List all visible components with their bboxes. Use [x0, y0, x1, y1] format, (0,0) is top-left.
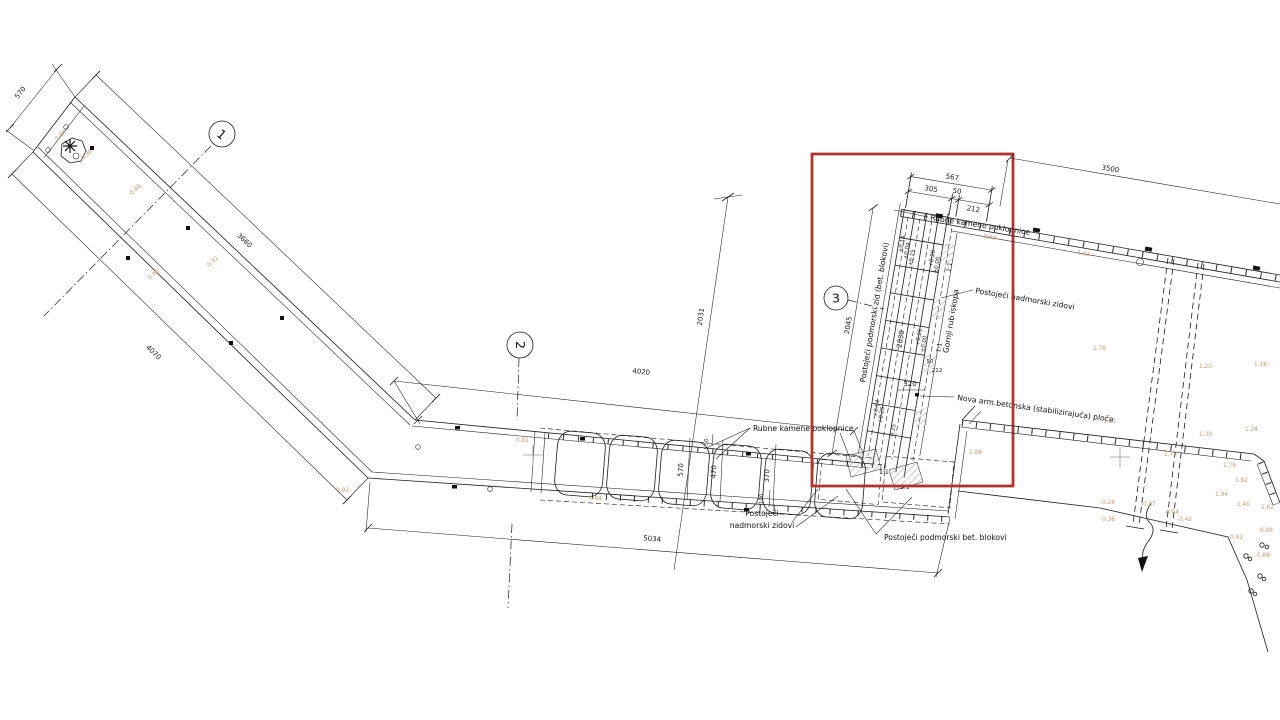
spot-elevation: -0.36	[1100, 517, 1115, 523]
dim-vertical-ext: 2031	[696, 307, 706, 326]
dim-2031-group: 2031	[674, 193, 742, 570]
dim-sec-470: 470	[710, 465, 719, 479]
spot-elevation: 0.94	[54, 129, 68, 142]
spot-elevations: 0.94 0.98 0.86 0.92 0.90 0.93 0.81 0.84 …	[54, 129, 1274, 559]
bollard	[452, 485, 457, 489]
level-mark: -0.25	[889, 423, 897, 439]
section-marker-1: 1	[44, 121, 235, 316]
dim-head-width: 570	[13, 85, 28, 100]
spot-elevation: 1.78	[1093, 346, 1106, 352]
spot-elevation: 1.16	[1254, 362, 1267, 368]
slope-mark: 1:1	[879, 469, 889, 476]
spot-elevation: 0.93	[336, 488, 349, 494]
bollard	[280, 316, 284, 320]
section-marker-1-label: 1	[214, 126, 230, 143]
spot-elevation: 1.21	[1077, 250, 1091, 258]
dim-pier-top: 4020	[632, 367, 651, 377]
spot-elevation: 1.94	[1215, 492, 1228, 498]
dim-inner-side: 4070	[144, 344, 162, 362]
spot-elevation: 1.40	[1237, 502, 1250, 508]
spot-elevation: 1.75	[1164, 452, 1177, 458]
label-nadmorski-zidovi: nadmorski zidovi	[730, 521, 795, 530]
label-rubne-kamene-poklopnice: Rubne kamene poklopnice	[753, 424, 854, 433]
site-plan-canvas: 570 3660 4070 1	[0, 0, 1280, 720]
dim-detail-f: 320	[903, 380, 916, 388]
dim-quay: 3500	[1101, 164, 1120, 175]
dim-5034-group: 5034	[364, 482, 950, 577]
bollard	[1145, 247, 1153, 252]
spot-elevation: -0.37	[1141, 502, 1156, 508]
label-postojeci: Postojeći	[745, 509, 779, 518]
excavation-hatch	[913, 407, 928, 429]
label-gornji-rub-iskopa: Gornji rub iskopa	[941, 289, 961, 354]
dim-detail-total: 567	[945, 172, 960, 182]
spot-elevation: 0.86	[129, 183, 143, 196]
dim-sec-570: 570	[677, 463, 686, 477]
bollard	[1033, 228, 1041, 233]
dim-detail-c: 212	[966, 204, 981, 214]
spot-elevation: 0.99	[983, 234, 997, 242]
spot-elevation: 0.81	[516, 438, 529, 444]
label-nadmorski-right: Postojeći nadmorski zidovi	[975, 286, 1076, 311]
angled-pier-detail: 2045	[821, 160, 996, 485]
dim-outer-side: 3660	[235, 232, 253, 250]
dim-sec-50: 50	[704, 438, 710, 446]
spot-elevation: 0.92	[206, 255, 220, 268]
bollard	[746, 452, 751, 456]
dim-detail-a: 305	[924, 184, 939, 194]
spot-elevation: 1.20	[1199, 364, 1212, 370]
excavation-hatch	[940, 243, 955, 265]
bollard	[1253, 266, 1261, 271]
pier-labels: Rubne kamene poklopnice Postojeći nadmor…	[704, 424, 1007, 542]
label-nova-ploca: Nova arm.betonska (stabilizirajuća) ploč…	[957, 393, 1114, 424]
dim-sec-100: 100	[759, 493, 766, 504]
survey-cross	[523, 445, 1130, 467]
spot-elevation: 1.24	[1245, 427, 1258, 433]
excavation-hatch	[931, 298, 946, 320]
dim-pier-bottom: 5034	[643, 534, 662, 543]
dim-detail-b: 50	[952, 187, 962, 196]
rock-symbols	[1244, 543, 1269, 596]
label-podmorski-blokovi: Postojeći podmorski bet. blokovi	[884, 533, 1007, 542]
spot-elevation: 0.98	[80, 148, 94, 161]
spot-elevation: 1.79	[1223, 463, 1236, 469]
bollard	[186, 226, 190, 230]
section-marker-2: 2	[507, 332, 533, 608]
label-podmorski-zid: Postojeći podmorski zid (bet. blokovi)	[858, 242, 890, 383]
spot-elevation: 0.43	[1230, 535, 1243, 541]
bollard	[229, 341, 233, 345]
bollard	[455, 426, 460, 430]
section-marker-3-label: 3	[832, 291, 840, 306]
outflow-arrow-icon	[1138, 503, 1153, 572]
spot-elevation: 1.31	[1103, 419, 1116, 425]
spot-elevation: -0.42	[1177, 517, 1192, 523]
dim-detail-e: 212	[932, 368, 943, 374]
spot-elevation: -0.04	[1164, 510, 1179, 516]
spot-elevation: 0.84	[589, 496, 602, 502]
spot-elevation: 1.62	[1261, 505, 1274, 511]
buried-pipes	[1133, 258, 1204, 529]
spot-elevation: 1.82	[1235, 478, 1248, 484]
bollard	[580, 437, 585, 441]
section-marker-2-label: 2	[513, 341, 528, 349]
spot-elevation: -0.28	[1100, 500, 1115, 506]
bollard	[126, 256, 130, 260]
spot-elevation: 0.88	[1257, 553, 1270, 559]
dim-detail-d: 50	[926, 359, 934, 365]
spot-elevation: 1.88	[969, 450, 982, 456]
spot-elevation: 0.98	[1260, 528, 1273, 534]
slope-mark: 1:1	[946, 262, 955, 273]
dim-sec-370: 370	[763, 469, 772, 483]
spot-elevation: 1.30	[1199, 432, 1212, 438]
